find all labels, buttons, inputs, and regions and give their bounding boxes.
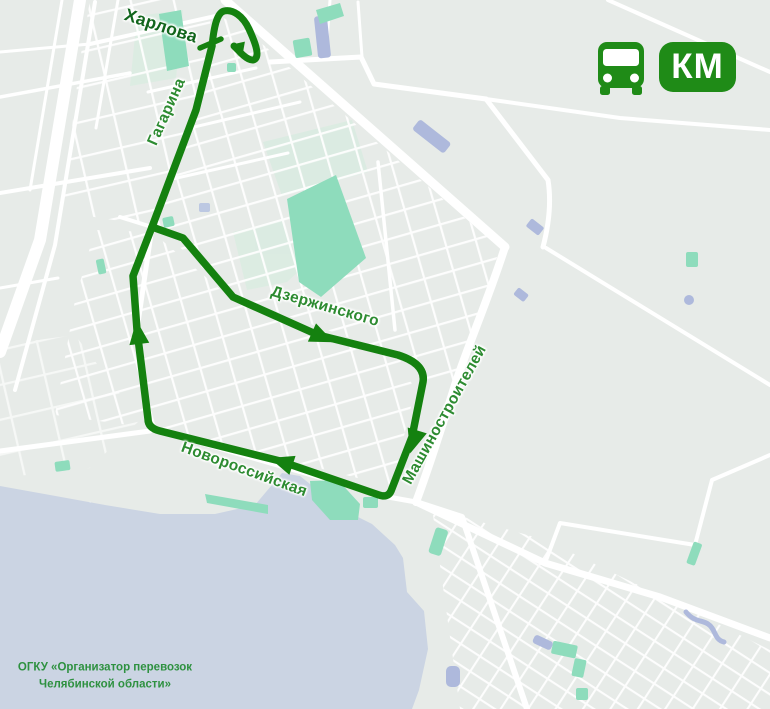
map-canvas xyxy=(0,0,770,709)
attribution-line1: ОГКУ «Организатор перевозок xyxy=(18,659,192,676)
bus-icon xyxy=(596,42,646,95)
route-number-badge: КМ xyxy=(659,42,736,92)
route-map[interactable]: Харлова Гагарина Дзержинского Машиностро… xyxy=(0,0,770,709)
route-header: КМ xyxy=(596,42,736,95)
attribution: ОГКУ «Организатор перевозок Челябинской … xyxy=(18,659,192,692)
attribution-line2: Челябинской области» xyxy=(18,676,192,693)
